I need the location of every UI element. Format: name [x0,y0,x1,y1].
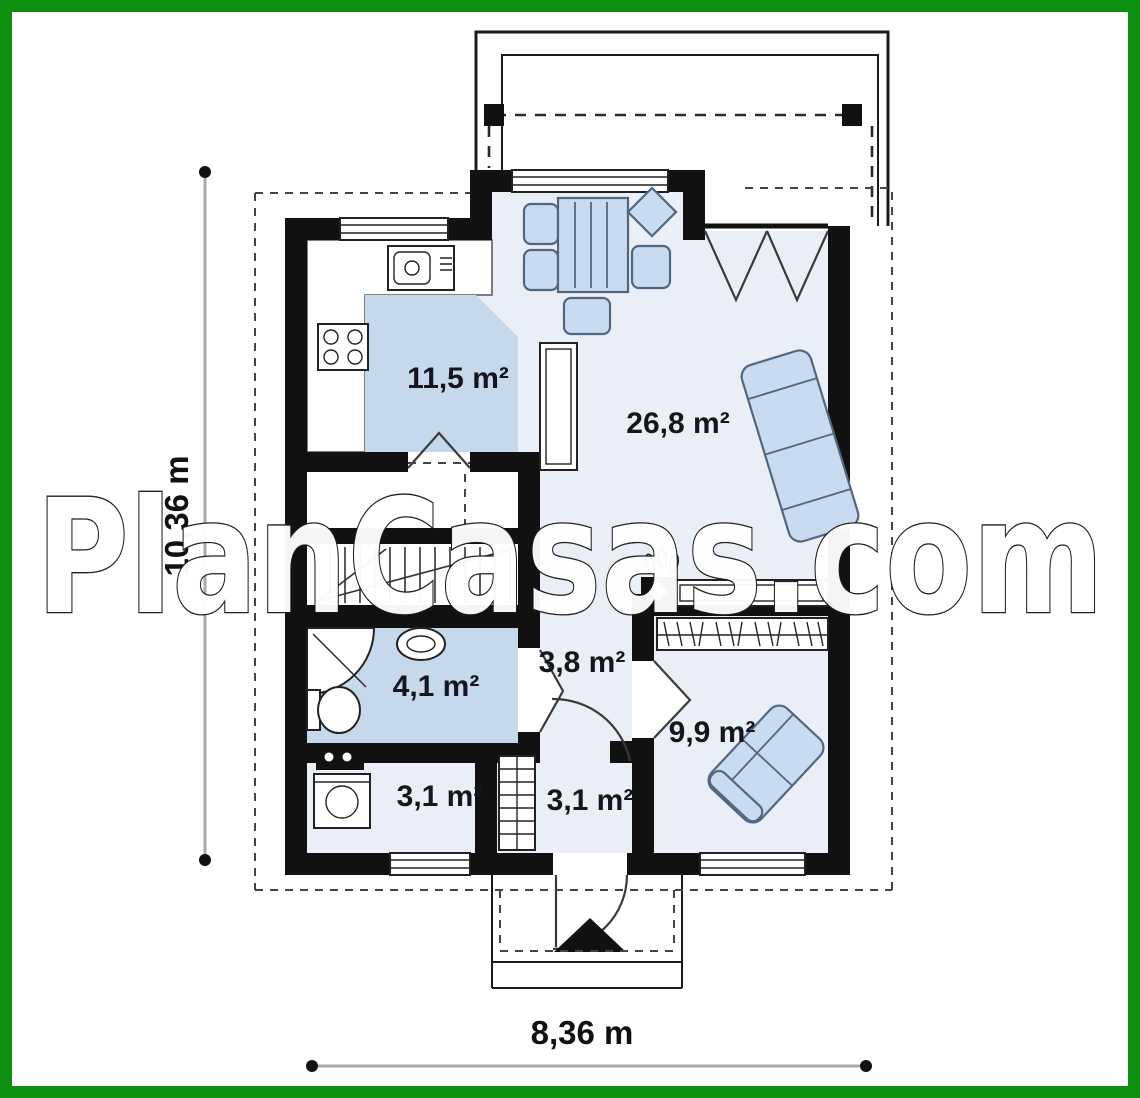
mini-cooktop-icon [316,744,364,770]
room-label-utility: 3,1 m² [397,780,484,813]
toilet-icon [307,687,360,733]
chair-icon [524,204,558,244]
chair-icon [632,246,670,288]
width-dimension-label: 8,36 m [531,1014,634,1051]
room-label-hallway: 3,8 m² [539,646,626,679]
cooktop-icon [318,324,368,370]
entrance-door [553,853,627,952]
washing-machine-icon [314,774,370,828]
window-kitchen-top [340,218,448,240]
room-label-kitchen: 11,5 m² [407,362,509,395]
kitchen-sink-icon [388,246,454,290]
watermark-text: PlanCasas.com [36,466,1104,650]
terrace-post-right [842,104,862,126]
window-dining-top [512,170,668,192]
room-label-bathroom: 4,1 m² [393,670,480,703]
chair-icon [564,298,610,334]
floor-plan-page: 10,36 m 8,36 m 11,5 m² 26,8 m² 3,8 m² 4,… [0,0,1140,1098]
entrance-arrow-icon [554,918,626,952]
room-label-bedroom: 9,9 m² [669,716,756,749]
terrace-post-left [484,104,504,126]
tall-cabinet-icon [540,343,577,470]
dimension-horizontal: 8,36 m [306,1014,872,1072]
window-bedroom-bottom [700,853,805,875]
chair-icon [524,250,558,290]
room-label-entry: 3,1 m² [547,784,634,817]
radiator-icon [499,756,535,850]
floor-plan-canvas: 10,36 m 8,36 m 11,5 m² 26,8 m² 3,8 m² 4,… [0,0,1140,1098]
window-utility-bottom [390,853,470,875]
room-label-living: 26,8 m² [626,407,729,440]
dining-table-icon [558,198,628,292]
